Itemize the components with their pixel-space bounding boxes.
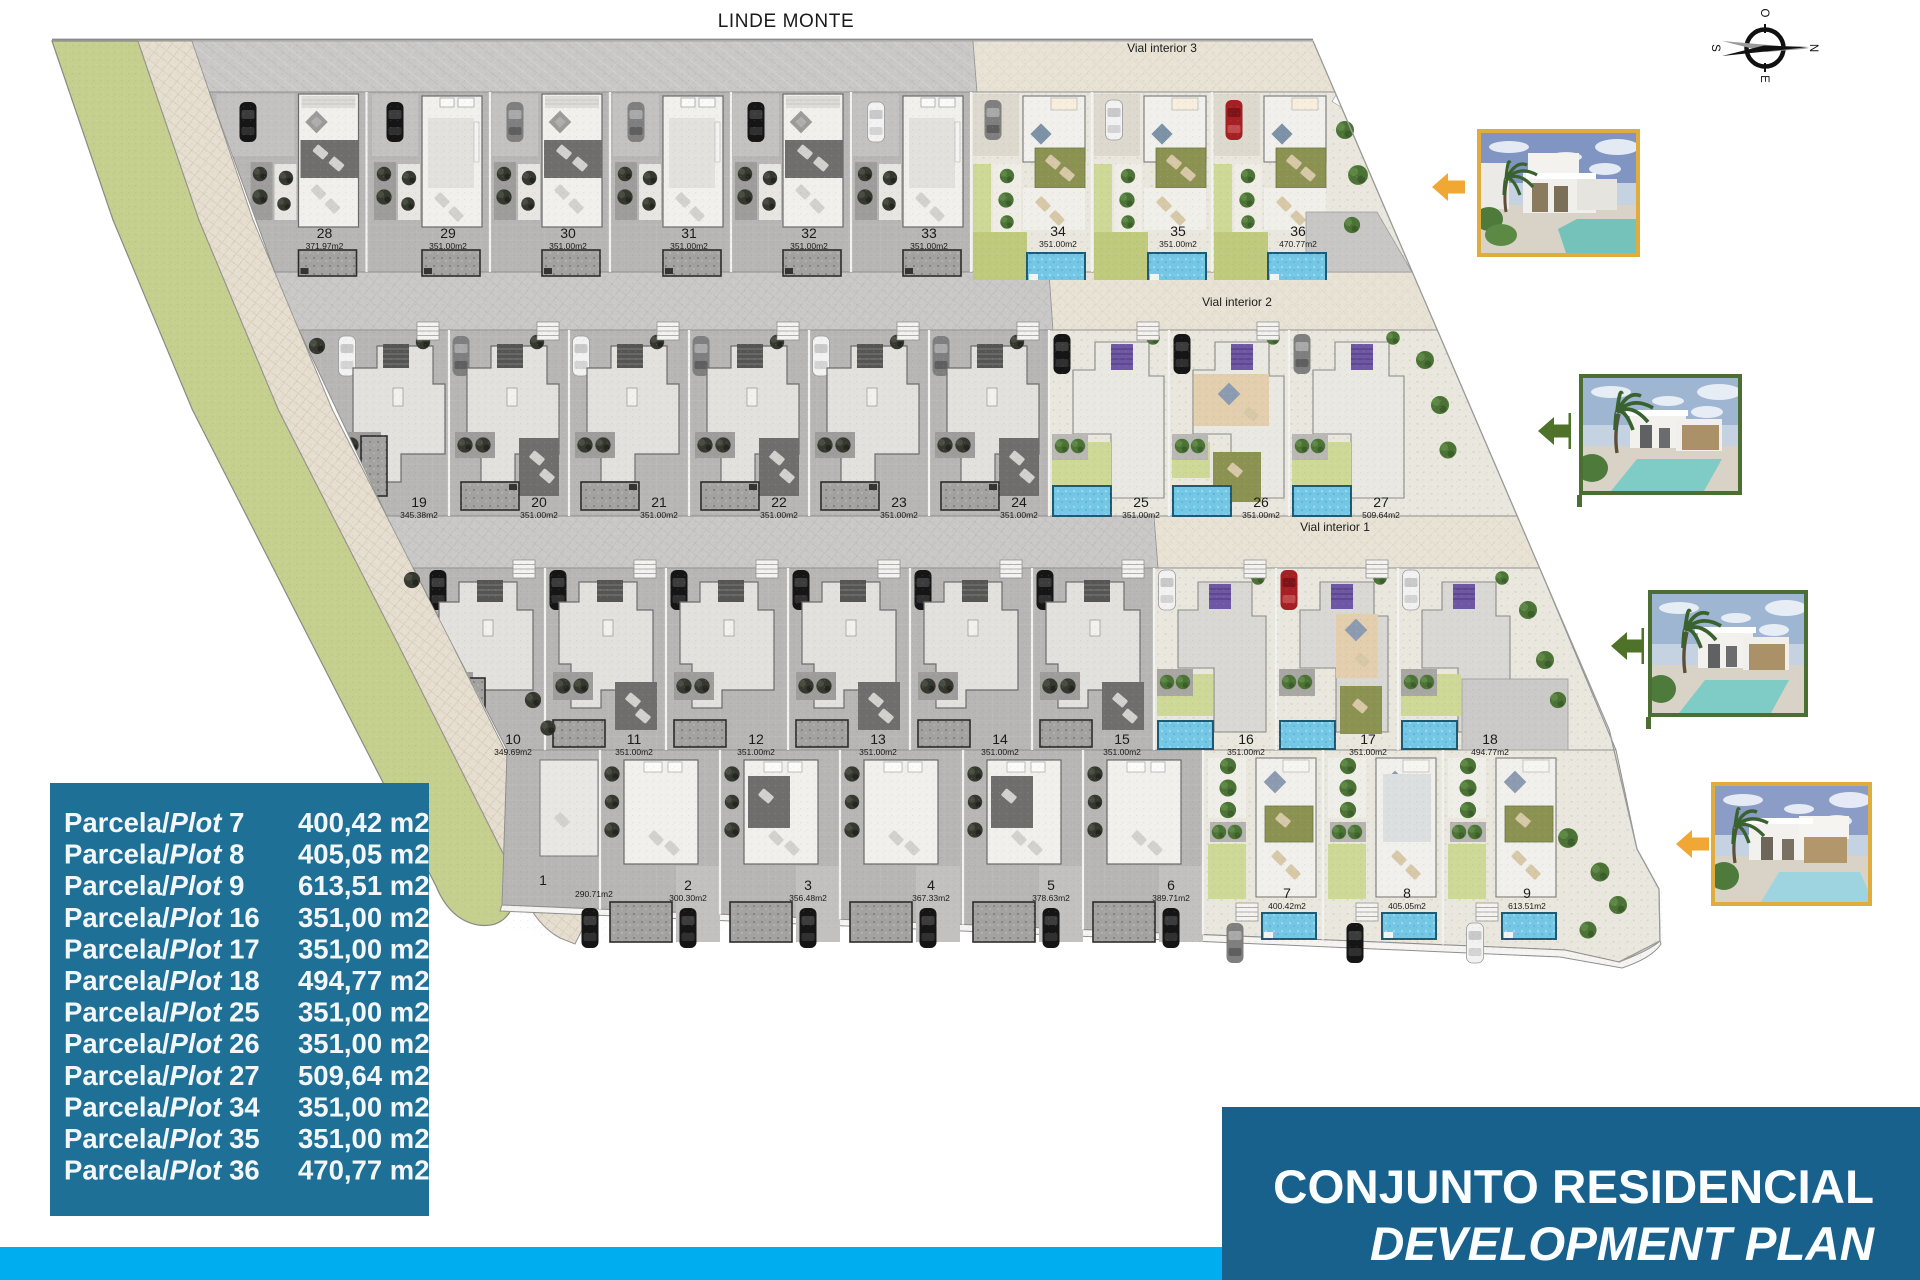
svg-text:CONJUNTO RESIDENCIAL: CONJUNTO RESIDENCIAL (1273, 1161, 1874, 1214)
svg-text:351,00 m2: 351,00 m2 (298, 933, 430, 964)
svg-text:351,00 m2: 351,00 m2 (298, 1028, 430, 1059)
svg-text:351,00 m2: 351,00 m2 (298, 1091, 430, 1122)
svg-text:405,05 m2: 405,05 m2 (298, 839, 430, 870)
svg-text:Parcela/Plot 8: Parcela/Plot 8 (64, 839, 244, 870)
svg-text:351,00 m2: 351,00 m2 (298, 1123, 430, 1154)
svg-text:LINDE MONTE: LINDE MONTE (718, 11, 854, 32)
svg-text:Parcela/Plot 34: Parcela/Plot 34 (64, 1091, 260, 1122)
svg-text:470,77 m2: 470,77 m2 (298, 1155, 430, 1186)
svg-text:S: S (1709, 44, 1721, 52)
svg-text:351,00 m2: 351,00 m2 (298, 997, 430, 1028)
svg-text:DEVELOPMENT PLAN: DEVELOPMENT PLAN (1370, 1218, 1876, 1271)
svg-text:Parcela/Plot 25: Parcela/Plot 25 (64, 997, 260, 1028)
svg-text:Parcela/Plot 16: Parcela/Plot 16 (64, 902, 260, 933)
svg-text:Parcela/Plot 17: Parcela/Plot 17 (64, 933, 260, 964)
svg-text:Parcela/Plot 7: Parcela/Plot 7 (64, 807, 244, 838)
svg-text:509,64 m2: 509,64 m2 (298, 1060, 430, 1091)
svg-text:Parcela/Plot 27: Parcela/Plot 27 (64, 1060, 260, 1091)
svg-text:494,77 m2: 494,77 m2 (298, 965, 430, 996)
svg-text:351,00 m2: 351,00 m2 (298, 902, 430, 933)
svg-text:613,51 m2: 613,51 m2 (298, 870, 430, 901)
svg-text:E: E (1758, 75, 1770, 83)
svg-text:Parcela/Plot 36: Parcela/Plot 36 (64, 1155, 260, 1186)
svg-text:N: N (1807, 44, 1819, 52)
svg-text:Parcela/Plot 9: Parcela/Plot 9 (64, 870, 244, 901)
svg-text:Parcela/Plot 18: Parcela/Plot 18 (64, 965, 260, 996)
svg-text:Parcela/Plot 26: Parcela/Plot 26 (64, 1028, 260, 1059)
svg-text:Parcela/Plot 35: Parcela/Plot 35 (64, 1123, 260, 1154)
svg-text:400,42 m2: 400,42 m2 (298, 807, 430, 838)
svg-text:O: O (1758, 9, 1770, 18)
